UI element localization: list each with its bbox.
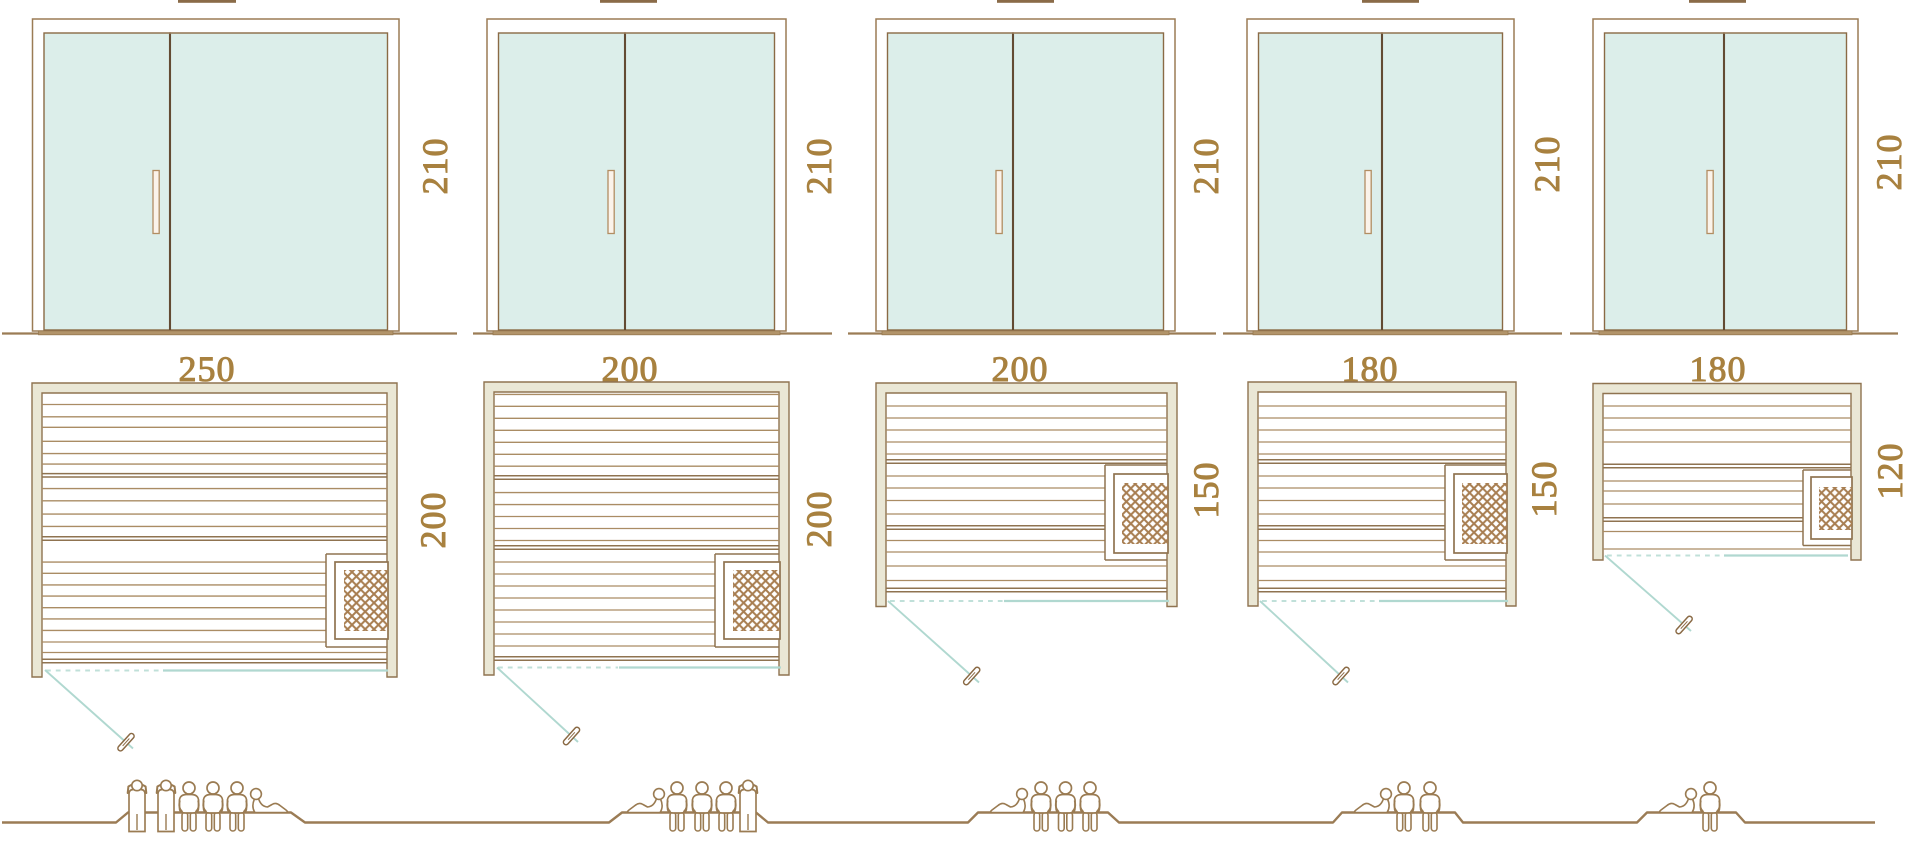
svg-text:210: 210 — [415, 138, 455, 195]
svg-text:200: 200 — [799, 491, 839, 548]
svg-text:150: 150 — [1186, 462, 1226, 519]
svg-text:120: 120 — [1870, 443, 1910, 500]
svg-text:210: 210 — [799, 138, 839, 195]
svg-text:210: 210 — [1527, 136, 1567, 193]
svg-text:200: 200 — [413, 492, 453, 549]
svg-text:210: 210 — [1186, 138, 1226, 195]
svg-text:150: 150 — [1524, 461, 1564, 518]
svg-text:210: 210 — [1869, 134, 1909, 191]
